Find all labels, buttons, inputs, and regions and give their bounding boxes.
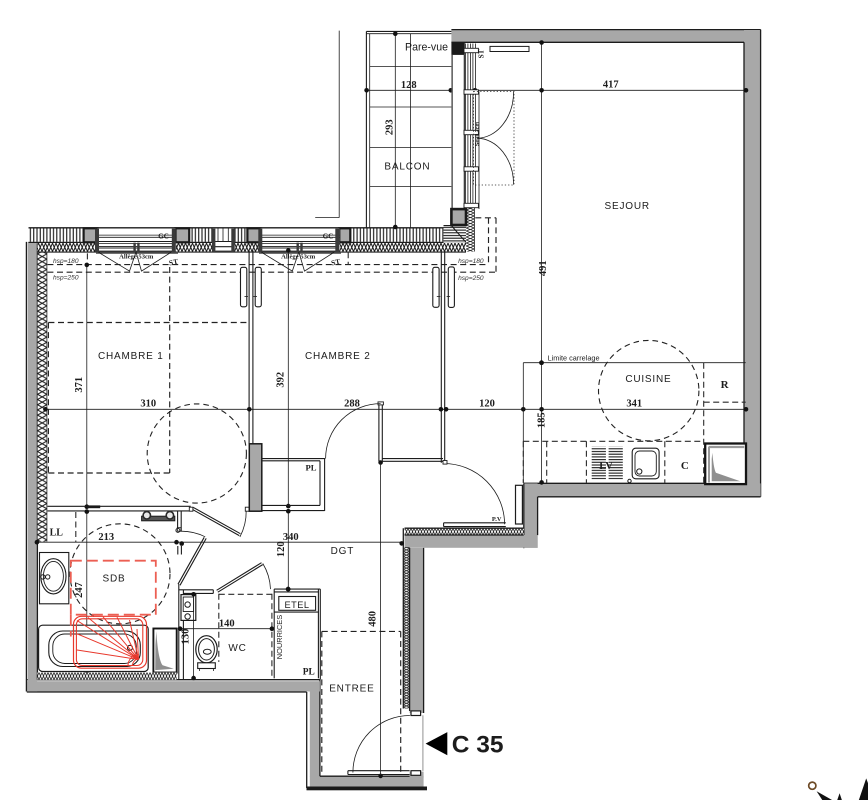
svg-text:NOURRICES: NOURRICES [275,615,284,659]
svg-text:293: 293 [384,119,395,135]
svg-text:310: 310 [140,398,156,409]
svg-text:120: 120 [479,398,495,409]
svg-text:Pare-vue: Pare-vue [405,42,448,54]
svg-text:480: 480 [367,611,378,627]
svg-text:130: 130 [181,629,192,645]
svg-text:CHAMBRE 2: CHAMBRE 2 [305,351,371,362]
svg-text:GC: GC [158,232,169,240]
svg-text:341: 341 [626,398,642,409]
svg-text:Seuil 2cm: Seuil 2cm [475,122,481,147]
svg-text:hsp=250: hsp=250 [53,275,79,282]
svg-text:CUISINE: CUISINE [625,374,671,385]
svg-text:185: 185 [537,412,548,428]
svg-text:hsp=250: hsp=250 [458,275,484,282]
svg-text:392: 392 [276,372,287,388]
svg-text:213: 213 [98,532,114,543]
svg-text:Allège 53cm: Allège 53cm [281,253,316,260]
svg-text:PL: PL [306,463,317,473]
svg-text:ETEL: ETEL [285,600,310,610]
svg-text:ST: ST [478,49,486,58]
svg-text:Limite carrelage: Limite carrelage [548,353,600,362]
svg-text:PL: PL [303,668,315,678]
svg-text:DGT: DGT [331,546,355,557]
svg-text:SEJOUR: SEJOUR [605,201,650,212]
svg-text:247: 247 [74,582,85,598]
svg-text:ST: ST [330,257,341,268]
svg-text:hsp=180: hsp=180 [53,258,79,265]
svg-text:C: C [681,460,689,472]
svg-text:WC: WC [228,643,246,654]
svg-text:BALCON: BALCON [384,161,430,172]
svg-text:120: 120 [276,541,287,557]
svg-text:288: 288 [344,398,360,409]
svg-text:hsp=180: hsp=180 [458,258,484,265]
svg-text:Allège 53cm: Allège 53cm [119,253,154,260]
svg-text:GC: GC [323,232,334,240]
svg-text:R: R [721,379,730,391]
svg-text:LL: LL [50,528,64,539]
svg-text:417: 417 [603,79,619,90]
svg-text:C 35: C 35 [452,731,504,758]
svg-text:491: 491 [538,260,549,276]
svg-text:340: 340 [283,532,299,543]
svg-text:371: 371 [74,377,85,393]
svg-text:P.V: P.V [492,516,502,523]
svg-text:SDB: SDB [103,573,126,584]
svg-text:LV: LV [599,461,613,472]
svg-text:128: 128 [401,80,417,91]
svg-text:ENTREE: ENTREE [329,684,374,695]
svg-text:CHAMBRE 1: CHAMBRE 1 [98,351,164,362]
svg-text:140: 140 [219,618,235,629]
svg-text:ST: ST [168,257,179,268]
